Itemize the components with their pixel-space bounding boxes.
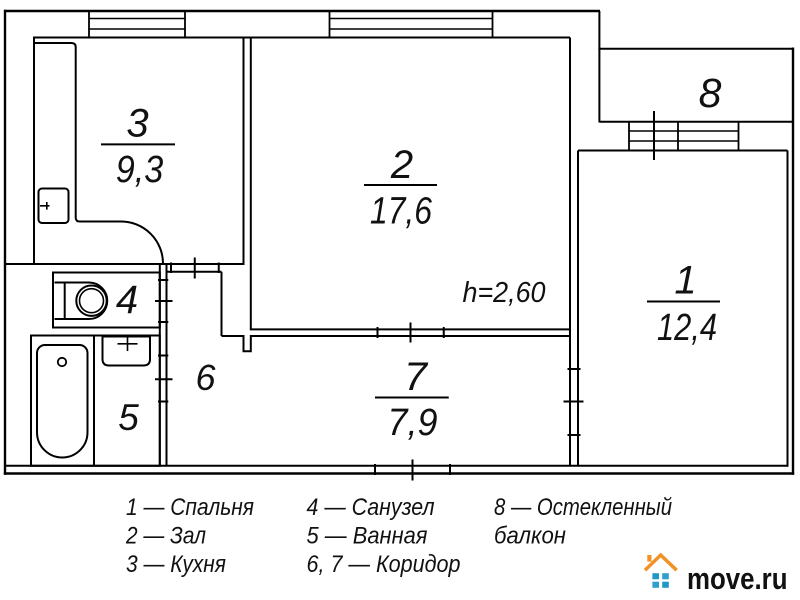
- svg-text:1: 1: [674, 259, 696, 303]
- svg-text:5 — Ванная: 5 — Ванная: [307, 523, 428, 550]
- svg-text:9,3: 9,3: [116, 149, 164, 191]
- svg-text:3: 3: [126, 102, 148, 146]
- svg-text:8: 8: [699, 70, 722, 116]
- svg-text:12,4: 12,4: [657, 307, 717, 349]
- svg-text:2 — Зал: 2 — Зал: [125, 523, 206, 550]
- svg-text:3 — Кухня: 3 — Кухня: [126, 551, 226, 578]
- svg-text:4: 4: [116, 278, 138, 322]
- svg-text:8 — Остекленный: 8 — Остекленный: [494, 494, 672, 521]
- svg-text:move.ru: move.ru: [687, 561, 788, 596]
- svg-text:5: 5: [118, 397, 139, 438]
- svg-text:2: 2: [390, 143, 413, 187]
- svg-text:17,6: 17,6: [370, 191, 433, 233]
- svg-text:4 — Санузел: 4 — Санузел: [307, 494, 435, 521]
- svg-text:6, 7 — Коридор: 6, 7 — Коридор: [307, 551, 461, 578]
- svg-text:1 — Спальня: 1 — Спальня: [126, 494, 254, 521]
- svg-text:7,9: 7,9: [388, 402, 438, 444]
- svg-text:балкон: балкон: [494, 523, 566, 550]
- svg-text:h=2,60: h=2,60: [463, 277, 546, 309]
- svg-text:6: 6: [195, 357, 216, 398]
- svg-text:7: 7: [404, 355, 429, 399]
